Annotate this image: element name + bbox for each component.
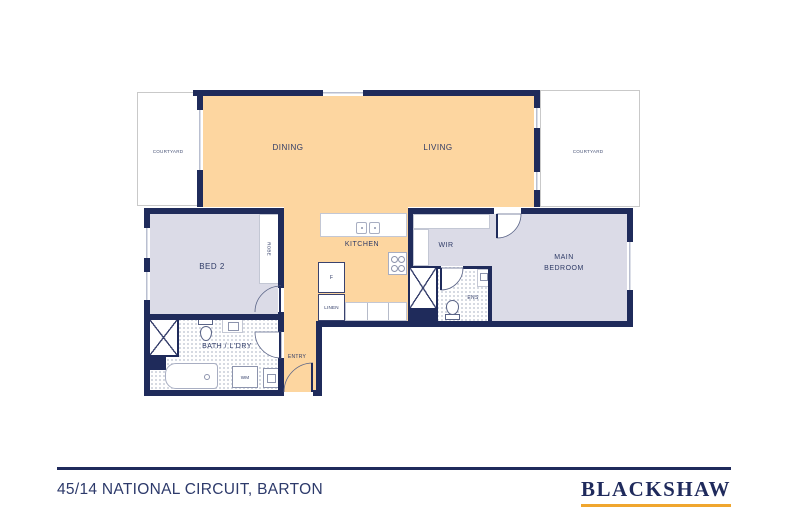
washing-machine: WM: [232, 366, 258, 388]
cabinet-divider: [367, 303, 368, 320]
courtyard-left-label: COURTYARD: [153, 149, 183, 154]
linen-label: LINEN: [319, 295, 344, 320]
entry-label: ENTRY: [288, 354, 306, 360]
wall: [408, 208, 494, 214]
wall: [316, 321, 633, 327]
wall: [144, 300, 150, 314]
cabinet-divider: [388, 303, 389, 320]
wall: [278, 208, 284, 288]
sink-drain-icon: [374, 227, 376, 229]
dining-label: DINING: [273, 143, 304, 152]
laundry-tub: [263, 368, 279, 388]
kitchen-sink-right: [369, 222, 380, 234]
robe-label: ROBE: [267, 242, 272, 256]
wall: [463, 266, 492, 269]
footer-divider: [57, 467, 731, 470]
wall: [197, 92, 203, 110]
laundry-tub-basin: [267, 374, 276, 383]
wall: [278, 358, 284, 396]
wall: [144, 318, 150, 396]
wir-shelf-left: [413, 229, 429, 266]
wall: [488, 266, 492, 323]
ens-basin: [480, 273, 488, 281]
property-address: 45/14 NATIONAL CIRCUIT, BARTON: [57, 481, 323, 499]
courtyard-right-label: COURTYARD: [573, 149, 603, 154]
wall: [197, 170, 203, 207]
wall: [144, 258, 150, 272]
wall: [278, 312, 284, 332]
service-duct2: [408, 310, 438, 321]
kitchen-sink-left: [356, 222, 367, 234]
floorplan: F LINEN WM: [0, 0, 790, 527]
hallway-floor: [284, 207, 316, 392]
wall: [144, 208, 150, 228]
bath-basin: [228, 322, 239, 331]
wir-label: WIR: [438, 242, 453, 249]
bathtub: [165, 363, 218, 389]
window: [144, 228, 150, 258]
ens-label: ENS: [467, 295, 478, 301]
main-bedroom-label: MAIN BEDROOM: [535, 253, 593, 275]
wall: [144, 208, 284, 214]
window: [534, 108, 540, 128]
shower: [148, 318, 179, 357]
wall: [316, 321, 322, 396]
washing-machine-label: WM: [233, 367, 257, 387]
bed2-label: BED 2: [199, 262, 225, 271]
window: [197, 110, 203, 170]
burner-icon: [391, 265, 398, 272]
wall: [534, 90, 540, 108]
floorplan-page: F LINEN WM: [0, 0, 790, 527]
burner-icon: [391, 256, 398, 263]
wall: [521, 208, 633, 214]
wall: [193, 90, 540, 96]
window: [534, 172, 540, 190]
bath-drain-icon: [204, 374, 210, 380]
window: [323, 90, 363, 96]
cooktop: [388, 252, 407, 275]
wall: [627, 208, 633, 242]
living-label: LIVING: [423, 143, 452, 152]
burner-icon: [398, 265, 405, 272]
blackshaw-logo: BLACKSHAW: [581, 477, 731, 507]
window: [144, 272, 150, 300]
burner-icon: [398, 256, 405, 263]
linen-cupboard: LINEN: [318, 294, 345, 321]
bath-laundry-label: BATH / L'DRY: [202, 343, 252, 350]
wall: [144, 390, 284, 396]
kitchen-lower-cabinets: [345, 302, 407, 321]
wall: [144, 314, 284, 320]
sink-drain-icon: [361, 227, 363, 229]
dining-living-floor: [203, 96, 534, 207]
wall: [408, 208, 413, 266]
bath-vanity: [222, 318, 243, 333]
fridge-label: F: [319, 263, 344, 292]
wall: [436, 266, 441, 269]
ens-toilet-tank: [445, 314, 460, 320]
wall: [627, 290, 633, 327]
fridge-space: F: [318, 262, 345, 293]
wall: [534, 128, 540, 172]
kitchen-label: KITCHEN: [345, 241, 379, 248]
service-shaft: [408, 266, 438, 310]
wir-shelf-top: [413, 214, 490, 229]
wall: [534, 190, 540, 207]
window: [627, 242, 633, 290]
